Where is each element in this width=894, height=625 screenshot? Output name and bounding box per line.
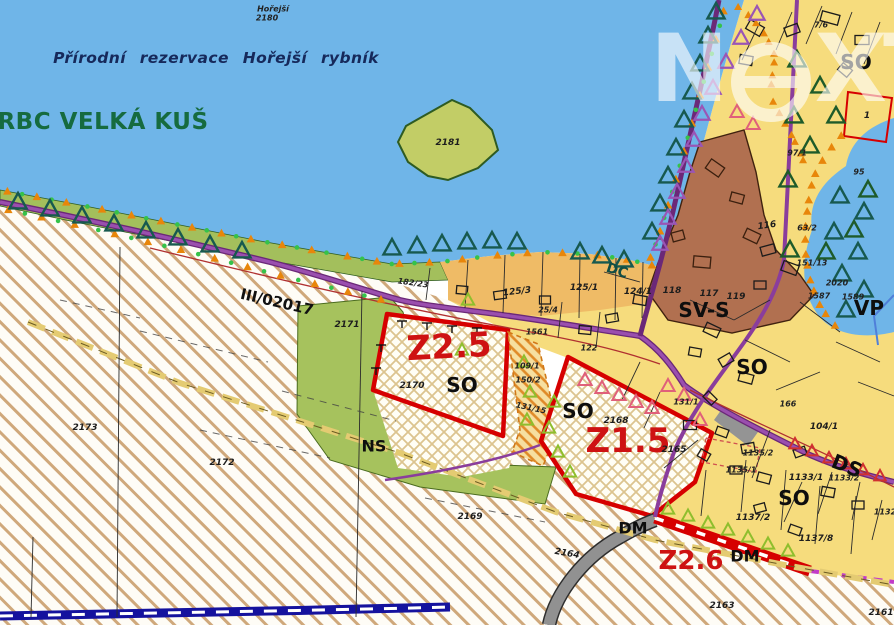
zoning-map-screenshot: Hořejší2180Přírodní rezervace Hořejší ry… — [0, 0, 894, 625]
map-canvas — [0, 0, 894, 625]
